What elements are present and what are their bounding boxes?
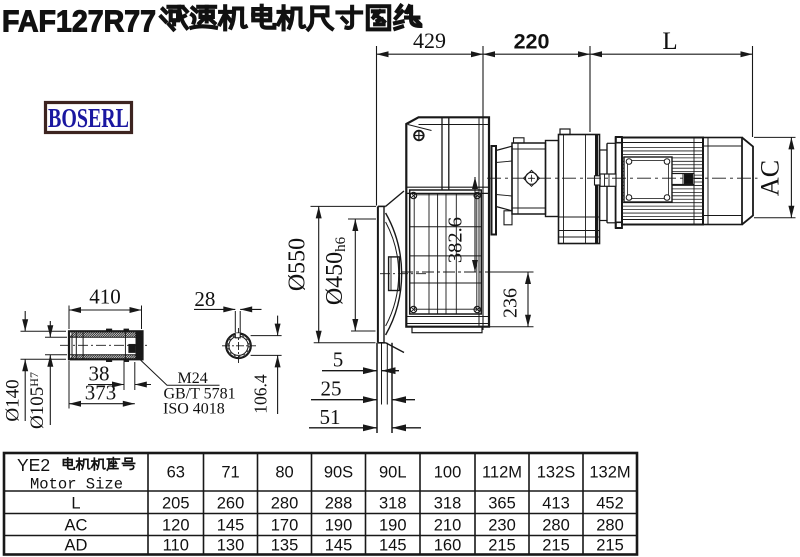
svg-text:365: 365 [488,495,516,513]
svg-text:Motor Size: Motor Size [30,476,123,494]
svg-text:205: 205 [162,495,190,513]
svg-text:410: 410 [89,285,121,309]
svg-text:382.6: 382.6 [445,217,467,263]
svg-text:236: 236 [500,288,522,318]
svg-text:280: 280 [596,517,624,535]
svg-text:L: L [662,28,677,55]
svg-text:106.4: 106.4 [251,374,271,414]
svg-text:130: 130 [217,537,245,555]
svg-text:5: 5 [333,348,344,372]
svg-text:145: 145 [217,517,245,535]
svg-text:215: 215 [488,537,516,555]
svg-text:90L: 90L [379,464,407,482]
svg-text:FAF127R77: FAF127R77 [2,4,156,39]
svg-text:280: 280 [542,517,570,535]
svg-text:429: 429 [413,28,446,53]
svg-text:318: 318 [379,495,407,513]
svg-text:120: 120 [162,517,190,535]
svg-text:190: 190 [379,517,407,535]
svg-text:190: 190 [325,517,353,535]
svg-text:215: 215 [596,537,624,555]
svg-text:170: 170 [271,517,299,535]
svg-text:145: 145 [325,537,353,555]
svg-text:AC: AC [756,160,785,196]
svg-text:63: 63 [167,464,185,482]
svg-text:YE2: YE2 [17,455,50,475]
svg-text:Ø140: Ø140 [3,379,24,421]
svg-text:M24: M24 [178,370,208,387]
svg-text:413: 413 [542,495,570,513]
svg-text:373: 373 [85,381,117,405]
svg-text:135: 135 [271,537,299,555]
svg-text:25: 25 [321,377,342,401]
svg-text:220: 220 [514,30,550,54]
svg-text:210: 210 [434,517,462,535]
svg-text:71: 71 [221,464,239,482]
svg-text:100: 100 [434,464,462,482]
svg-text:Ø550: Ø550 [285,238,311,291]
svg-text:28: 28 [194,287,215,311]
svg-text:132M: 132M [589,464,630,482]
svg-text:90S: 90S [324,464,353,482]
svg-text:112M: 112M [482,464,522,482]
svg-text:ISO 4018: ISO 4018 [163,401,225,418]
svg-text:288: 288 [325,495,353,513]
svg-text:260: 260 [217,495,245,513]
svg-text:230: 230 [488,517,516,535]
svg-text:215: 215 [542,537,570,555]
svg-text:160: 160 [434,537,462,555]
svg-text:80: 80 [275,464,293,482]
svg-text:318: 318 [434,495,462,513]
svg-text:132S: 132S [537,464,576,482]
svg-text:280: 280 [271,495,299,513]
svg-text:AC: AC [65,517,88,535]
svg-text:145: 145 [379,537,407,555]
svg-text:AD: AD [65,537,88,555]
svg-text:110: 110 [163,537,189,555]
svg-text:51: 51 [320,405,341,429]
svg-text:452: 452 [596,495,624,513]
svg-text:L: L [71,495,80,513]
svg-text:BOSERL: BOSERL [48,103,129,133]
